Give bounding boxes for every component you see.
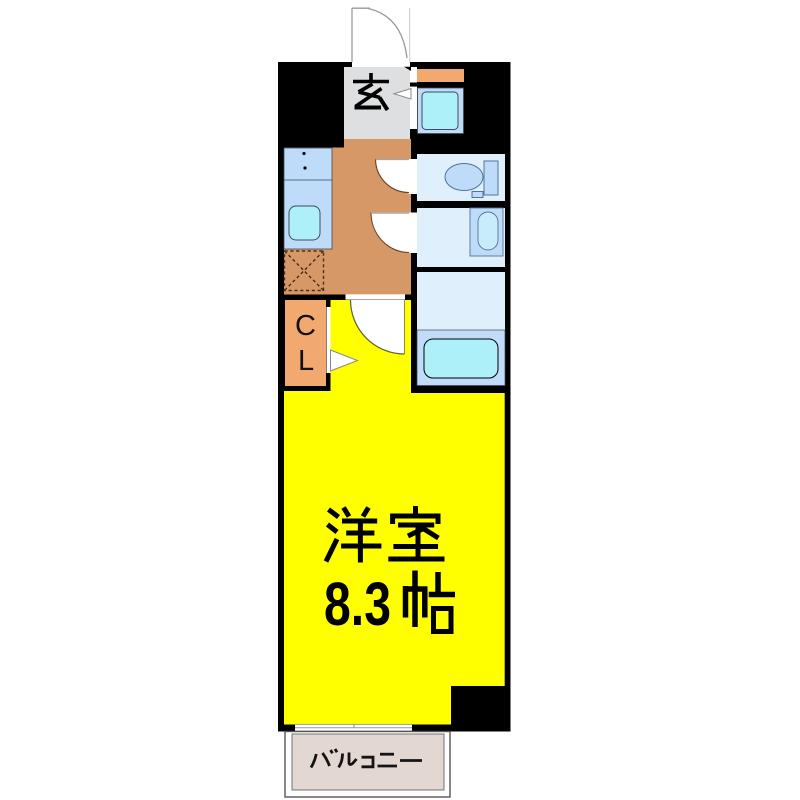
svg-text:L: L bbox=[298, 345, 314, 377]
svg-text:8.3: 8.3 bbox=[324, 570, 391, 638]
svg-text:C: C bbox=[295, 310, 316, 342]
